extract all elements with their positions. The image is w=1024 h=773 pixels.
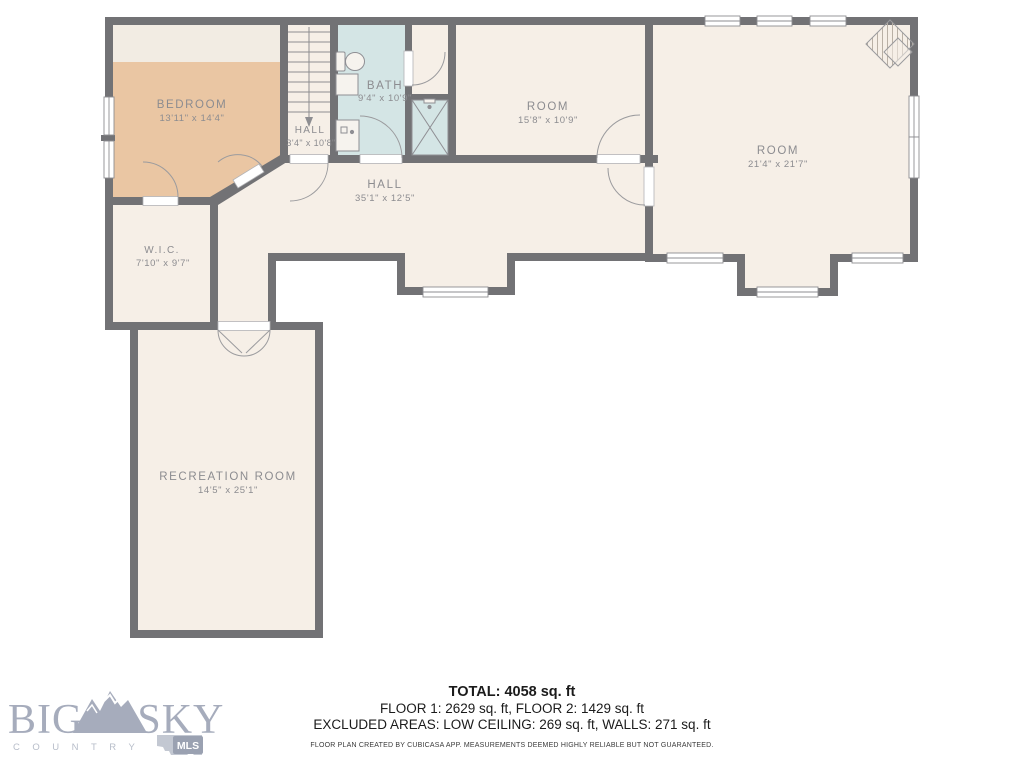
floor-plan-page: BEDROOM 13'11" x 14'4" HALL 3'4" x 10'8"…	[0, 0, 1024, 768]
room-dims-room-small: 15'8" x 10'9"	[518, 115, 578, 126]
room-dims-wic: 7'10" x 9'7"	[136, 258, 190, 269]
room-label-bath: BATH	[367, 80, 403, 92]
tub-icon	[336, 74, 358, 95]
mountain-icon	[71, 687, 149, 740]
room-label-wic: W.I.C.	[144, 245, 180, 256]
room-label-room-small: ROOM	[527, 101, 569, 113]
room-label-recreation: RECREATION ROOM	[159, 471, 297, 483]
room-label-hall-stairs: HALL	[295, 125, 326, 136]
room-dims-room-large: 21'4" x 21'7"	[748, 159, 808, 170]
floor-plan-svg: BEDROOM 13'11" x 14'4" HALL 3'4" x 10'8"…	[0, 0, 1024, 768]
sink-icon	[336, 120, 359, 151]
room-dims-bath: 9'4" x 10'9"	[358, 93, 412, 104]
room-dims-hall-main: 35'1" x 12'5"	[355, 193, 415, 204]
mls-badge-text: MLS	[177, 740, 199, 752]
room-dims-hall-stairs: 3'4" x 10'8"	[286, 138, 335, 148]
room-label-hall-main: HALL	[367, 179, 402, 191]
big-sky-mls-logo: BIG SKY COUNTRY MLS	[8, 694, 218, 764]
room-label-room-large: ROOM	[757, 145, 799, 157]
room-dims-bedroom: 13'11" x 14'4"	[159, 113, 224, 124]
room-label-bedroom: BEDROOM	[157, 99, 228, 111]
mls-badge: MLS	[156, 732, 206, 763]
room-dims-recreation: 14'5" x 25'1"	[198, 485, 258, 496]
toilet-icon	[336, 52, 365, 71]
